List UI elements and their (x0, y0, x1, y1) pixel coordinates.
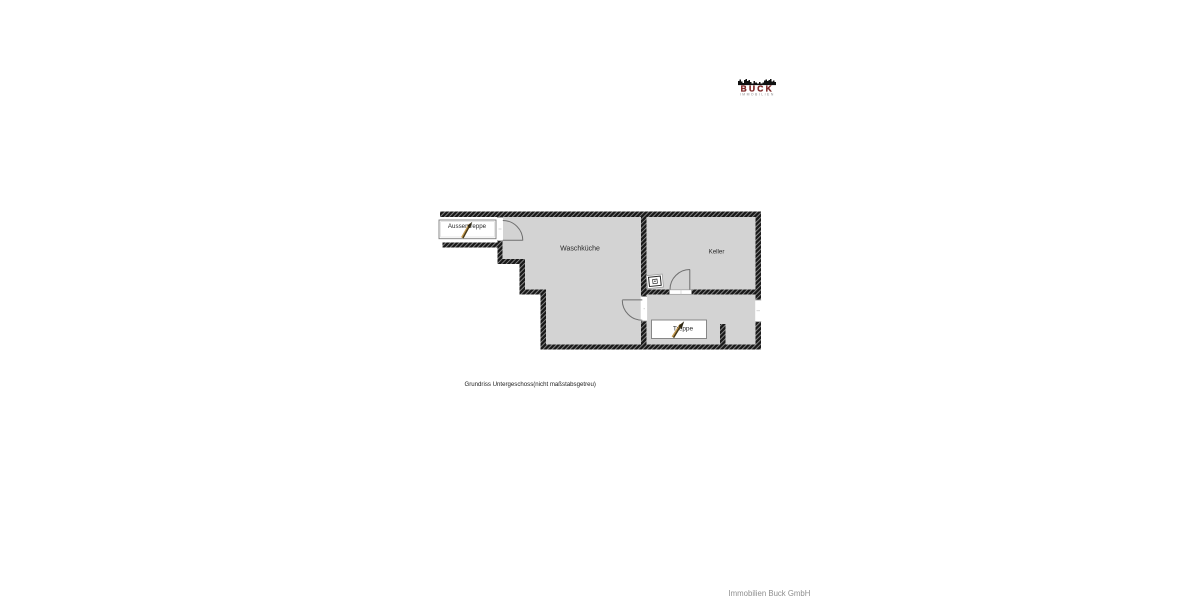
svg-text:Waschküche: Waschküche (560, 246, 600, 253)
svg-text:Keller: Keller (709, 249, 725, 256)
svg-text:Immobilien Buck GmbH: Immobilien Buck GmbH (729, 589, 811, 598)
svg-text:IMMOBILIEN: IMMOBILIEN (740, 92, 775, 96)
svg-text:Grundriss Untergeschoss(nicht: Grundriss Untergeschoss(nicht maßstabsge… (465, 381, 596, 388)
